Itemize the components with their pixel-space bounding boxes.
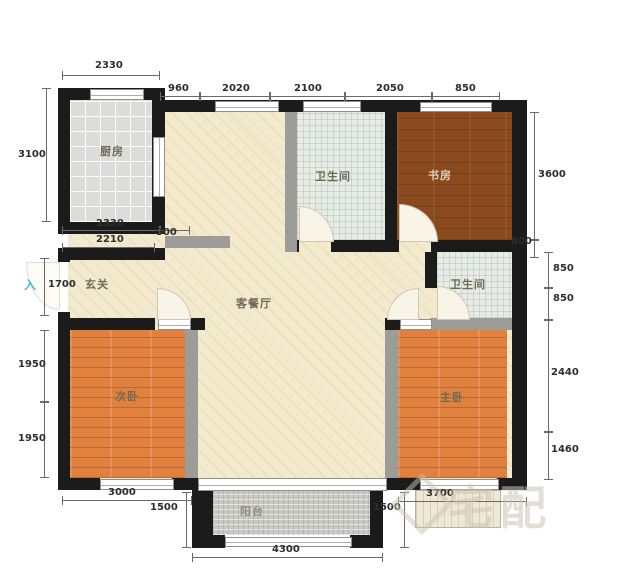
bedroom-second-label: 次卧	[115, 388, 139, 404]
kitchen-right-window	[153, 137, 165, 197]
wall-balcony-bottom-b	[350, 535, 383, 548]
balcony-sliding-door	[198, 478, 387, 491]
dim-right-3600: 3600	[538, 170, 566, 180]
dim-line-left-1700	[44, 258, 45, 316]
floor-plan: 厨房 卫生间 书房 玄关 客餐厅 卫生间 次卧 主卧 阳台 入 2330 960…	[0, 0, 640, 584]
wall-bath-top-left	[285, 112, 297, 252]
bedroom-master-label: 主卧	[440, 389, 464, 405]
dim-left-1950-upper: 1950	[18, 360, 46, 370]
wall-right-outer	[512, 100, 527, 490]
dim-bottom-3000: 3000	[108, 488, 136, 498]
wall-foyer-top	[58, 248, 165, 260]
balcony-label: 阳台	[240, 503, 264, 519]
dim-bottom-4300: 4300	[272, 545, 300, 555]
dim-left-1950-lower: 1950	[18, 434, 46, 444]
dim-top-850: 850	[455, 84, 476, 94]
dim-top-2050: 2050	[376, 84, 404, 94]
wall-bedroom-second-top	[58, 318, 155, 330]
kitchen-floor	[70, 100, 152, 222]
entry-arrow: 入	[24, 276, 36, 293]
dim-right-1460: 1460	[551, 445, 579, 455]
bathroom-top-label: 卫生间	[315, 168, 351, 184]
dim-line-bottom-4300	[192, 557, 383, 558]
dim-left-1700: 1700	[48, 280, 76, 290]
wall-bedroom-second-right	[185, 330, 198, 478]
dim-left-3100: 3100	[18, 150, 46, 160]
dim-right-800: 800	[511, 237, 532, 247]
study-top-window	[420, 102, 492, 112]
wall-left-entry-b	[58, 312, 70, 490]
bedroom-master-door-threshold	[400, 319, 432, 330]
watermark-text: 宅配	[448, 472, 552, 538]
dim-line-top-2050	[345, 96, 432, 97]
kitchen-label: 厨房	[100, 143, 124, 159]
dim-line-right-850-lower	[548, 288, 549, 320]
wall-bedroom-master-left	[385, 330, 398, 478]
dim-kitchen-2210: 2210	[96, 235, 124, 245]
dim-top-960: 960	[168, 84, 189, 94]
dim-right-2440: 2440	[551, 368, 579, 378]
wall-balcony-left	[192, 490, 213, 535]
dim-bottom-1500-left: 1500	[150, 503, 178, 513]
dim-line-right-2440	[548, 320, 549, 432]
dim-right-850-lower: 850	[553, 294, 574, 304]
bedroom-second-floor	[70, 330, 185, 478]
wall-bath-study-divider	[385, 112, 397, 252]
living-top-window	[215, 101, 279, 112]
bathroom-top-window	[303, 101, 361, 112]
dim-line-top-2020	[200, 96, 270, 97]
dim-line-top-2100	[270, 96, 345, 97]
dim-line-right-850-upper	[548, 252, 549, 288]
dim-line-top-850	[432, 96, 500, 97]
dim-kitchen-900: 900	[156, 228, 177, 238]
study-label: 书房	[428, 167, 452, 183]
dim-line-kitchen-2330	[62, 230, 160, 231]
dim-line-right-3600	[534, 112, 535, 240]
dim-top-2330: 2330	[95, 61, 123, 71]
kitchen-top-window	[90, 89, 144, 100]
wall-kitchen-left	[58, 88, 70, 234]
dim-line-kitchen-2210	[62, 247, 155, 248]
dim-kitchen-2330: 2330	[96, 219, 124, 229]
dim-line-bottom-3000	[62, 500, 192, 501]
bedroom-second-door-threshold	[158, 319, 191, 330]
wall-balcony-bottom-a	[192, 535, 225, 548]
dim-line-right-800	[534, 240, 535, 258]
dim-top-2020: 2020	[222, 84, 250, 94]
wall-bath-right-left	[425, 252, 437, 288]
living-dining-label: 客餐厅	[236, 295, 272, 311]
wall-bedroom-second-bottom-b	[172, 478, 198, 490]
dim-line-top-960	[160, 96, 200, 97]
dim-line-top-2330	[62, 75, 160, 76]
dim-right-850-upper: 850	[553, 264, 574, 274]
dim-line-bottom-1500-left	[186, 492, 187, 548]
foyer-label: 玄关	[85, 276, 109, 292]
dim-top-2100: 2100	[294, 84, 322, 94]
bathroom-right-label: 卫生间	[450, 276, 486, 292]
balcony-floor	[213, 490, 370, 535]
wall-corner-bedroom-second	[189, 318, 205, 330]
dim-line-left-3100	[46, 88, 47, 222]
wall-left-entry-a	[58, 248, 70, 262]
